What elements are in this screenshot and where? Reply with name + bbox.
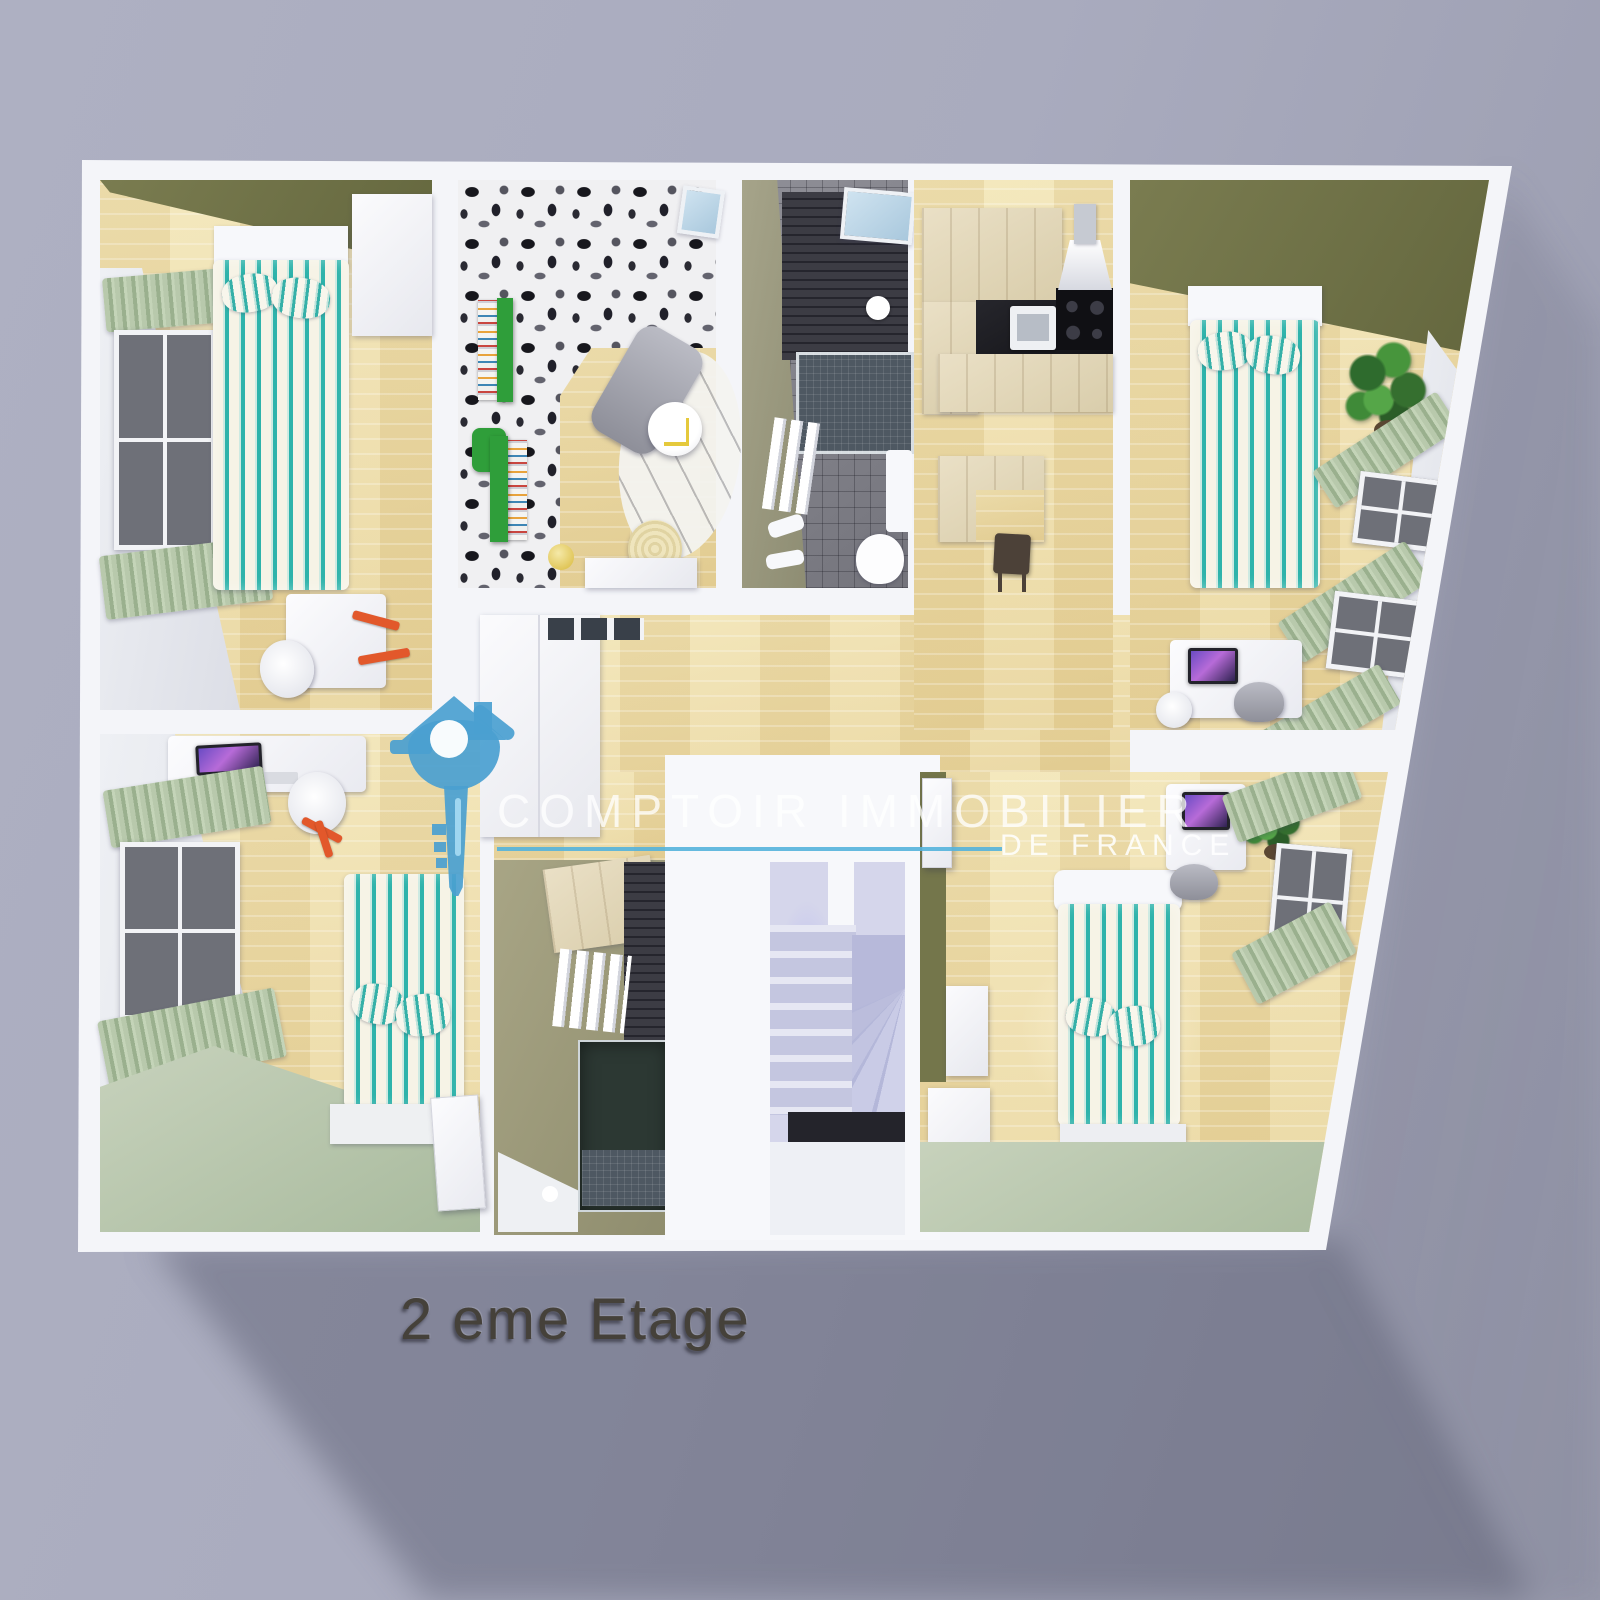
bath-mat	[886, 450, 912, 532]
stair-winder-fan	[852, 935, 905, 1125]
cooktop	[1056, 288, 1113, 350]
low-dresser	[585, 558, 697, 588]
tiled-wall	[624, 862, 665, 1044]
lamp	[548, 544, 574, 570]
hood-duct	[1074, 204, 1096, 244]
book-stack	[478, 300, 498, 400]
stair-landing	[770, 1142, 905, 1235]
toilet-roll	[542, 1186, 558, 1202]
door	[430, 1094, 486, 1211]
skylight	[840, 187, 916, 245]
stair-straight-flight	[770, 925, 856, 1115]
desk-chair	[1170, 864, 1218, 900]
wall-cabinet	[946, 986, 988, 1076]
skylight	[677, 185, 725, 238]
waste-bin	[1156, 692, 1192, 728]
sage-floor	[920, 1142, 1390, 1232]
green-shelf	[497, 298, 513, 402]
table-card	[664, 418, 689, 446]
upper-cabinets	[922, 208, 1062, 302]
towel-radiator	[552, 948, 632, 1033]
keyboard	[260, 772, 298, 784]
stool-leg	[1022, 572, 1026, 592]
door	[922, 778, 952, 868]
laptop-screen	[1191, 651, 1235, 681]
computer-screen	[1185, 795, 1227, 827]
kitchen-sink	[1010, 306, 1056, 350]
shower-mosaic-floor	[582, 1150, 665, 1206]
desk-chair	[1234, 682, 1284, 722]
lower-cabinets	[938, 354, 1113, 412]
floor-caption: 2 eme Etage	[400, 1286, 751, 1353]
window	[120, 842, 240, 1020]
bar-stool	[993, 533, 1031, 575]
laptop	[1188, 648, 1238, 684]
room-bedroom-bottom-right	[920, 772, 1390, 1232]
book-stack	[505, 440, 527, 540]
wardrobe	[352, 194, 432, 336]
window	[1352, 471, 1448, 553]
transom-window	[548, 618, 644, 640]
hallway-closet	[480, 615, 600, 837]
window	[114, 330, 216, 550]
closet-seam	[538, 615, 540, 837]
green-shelf	[490, 436, 508, 542]
stair-void	[788, 1112, 905, 1142]
floor-plan-scene: COMPTOIR IMMOBILIER DE FRANCE 2 eme Etag…	[0, 0, 1600, 1600]
shower-head	[866, 296, 890, 320]
stool-leg	[998, 572, 1002, 592]
toilet	[856, 534, 904, 584]
